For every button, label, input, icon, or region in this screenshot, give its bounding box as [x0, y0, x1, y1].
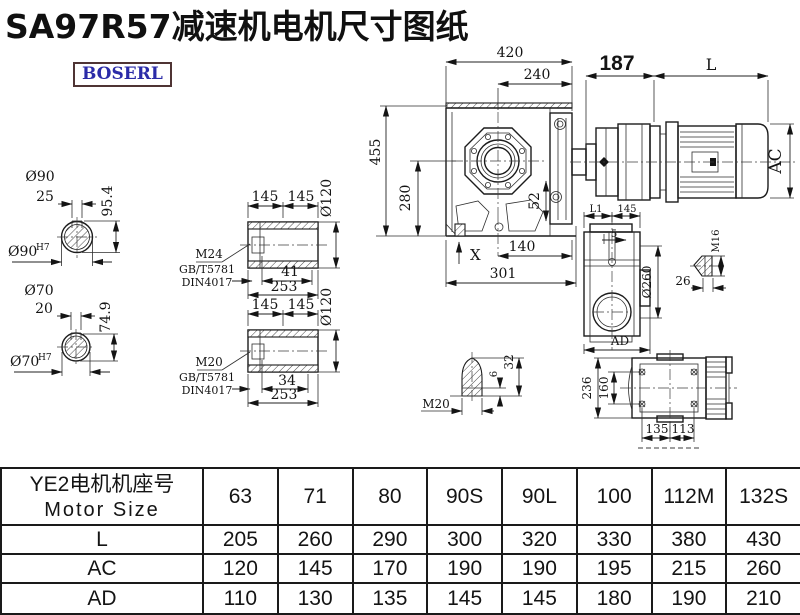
AD-71: 130 — [278, 583, 353, 614]
AC-90s: 190 — [427, 554, 502, 583]
m24-label: M24 — [195, 247, 223, 261]
table-row-L: L 205 260 290 300 320 330 380 430 — [1, 525, 800, 554]
m16-plug-detail: M16 26 — [675, 230, 726, 292]
drain-plug — [455, 224, 465, 236]
m20-thread-label: M20 — [195, 355, 223, 369]
hollow-shaft-detail-m24: 145 145 Ø120 M24 GB/T5781 DIN4017 41 253 — [179, 179, 340, 299]
L-100: 330 — [577, 525, 652, 554]
dim-41-label: 41 — [281, 264, 299, 280]
motor-size-header-en: Motor Size — [2, 498, 202, 522]
col-header-71: 71 — [278, 468, 353, 525]
dim-X-label: X — [470, 246, 481, 264]
row-label-AD: AD — [1, 583, 203, 614]
row-label-L: L — [1, 525, 203, 554]
gearbox-side-view: L1 145 5 Ø260 AD — [584, 204, 662, 354]
dim-52-label: 52 — [527, 192, 543, 210]
motor-assembly — [570, 122, 798, 202]
dim-5-label: 5 — [611, 229, 617, 240]
AD-100: 180 — [577, 583, 652, 614]
dim-L1-label: L1 — [589, 204, 602, 215]
AC-100: 195 — [577, 554, 652, 583]
m20-bolt-detail: M20 6 32 — [421, 352, 524, 415]
dim-187-label: 187 — [599, 52, 634, 75]
motor-end-cap — [736, 124, 768, 198]
dim-AC-label: AC — [766, 148, 786, 174]
col-header-90l: 90L — [502, 468, 577, 525]
AC-63: 120 — [203, 554, 278, 583]
hollow-shaft-detail-m20: 145 145 Ø120 M20 GB/T5781 DIN4017 34 253 — [179, 288, 340, 407]
dim-26-label: 26 — [675, 274, 690, 288]
dim-140-label: 140 — [509, 239, 536, 255]
dim-420-label: 420 — [497, 45, 524, 61]
flange-bolt-hole-bottom — [551, 192, 562, 203]
dim-113-label: 113 — [672, 422, 695, 436]
AC-80: 170 — [353, 554, 428, 583]
dia-90h7-label: Ø90 — [8, 244, 37, 260]
dim-236-label: 236 — [580, 377, 594, 400]
dim-25-label: 25 — [36, 189, 54, 205]
m20-bolt-label: M20 — [422, 397, 450, 411]
dim-95-4-label: 95.4 — [100, 185, 116, 216]
dim-145b-label: 145 — [288, 189, 315, 205]
motor-size-table: YE2电机机座号 Motor Size 63 71 80 90S 90L 100… — [0, 467, 800, 615]
col-header-63: 63 — [203, 468, 278, 525]
din-standard-a-label: DIN4017 — [182, 276, 233, 289]
AC-112m: 215 — [652, 554, 727, 583]
motor-size-header-cell: YE2电机机座号 Motor Size — [1, 468, 203, 525]
L-112m: 380 — [652, 525, 727, 554]
gb-standard-b-label: GB/T5781 — [179, 371, 235, 384]
dia-120a-label: Ø120 — [319, 179, 335, 217]
dia-90-label: Ø90 — [25, 169, 54, 185]
col-header-80: 80 — [353, 468, 428, 525]
m16-label: M16 — [711, 230, 722, 253]
L-132s: 430 — [726, 525, 800, 554]
col-header-132s: 132S — [726, 468, 800, 525]
dim-135-label: 135 — [646, 422, 669, 436]
AD-90l: 145 — [502, 583, 577, 614]
col-header-112m: 112M — [652, 468, 727, 525]
shaft-section-90: Ø90 25 95.4 Ø90 H7 — [8, 169, 120, 266]
col-header-100: 100 — [577, 468, 652, 525]
dim-280-label: 280 — [398, 185, 414, 212]
dim-6-label: 6 — [489, 371, 500, 377]
gb-standard-a-label: GB/T5781 — [179, 263, 235, 276]
dia-70h7-label: Ø70 — [10, 354, 39, 370]
dim-455-label: 455 — [368, 139, 384, 166]
dim-AD-label: AD — [610, 334, 629, 348]
dim-74-9-label: 74.9 — [98, 301, 114, 332]
table-header-row: YE2电机机座号 Motor Size 63 71 80 90S 90L 100… — [1, 468, 800, 525]
dim-301-label: 301 — [490, 266, 517, 282]
L-90s: 300 — [427, 525, 502, 554]
table-row-AD: AD 110 130 135 145 145 180 190 210 — [1, 583, 800, 614]
AD-63: 110 — [203, 583, 278, 614]
table-row-AC: AC 120 145 170 190 190 195 215 260 — [1, 554, 800, 583]
AD-132s: 210 — [726, 583, 800, 614]
dim-253b-label: 253 — [271, 387, 298, 403]
din-standard-b-label: DIN4017 — [182, 384, 233, 397]
flange-bolt-hole-top — [555, 119, 566, 130]
dim-20-label: 20 — [35, 301, 53, 317]
L-71: 260 — [278, 525, 353, 554]
AC-71: 145 — [278, 554, 353, 583]
dia-260-label: Ø260 — [640, 266, 654, 299]
dim-32-label: 32 — [502, 354, 516, 369]
main-view-dimensions: 420 240 187 L 455 280 52 140 301 X AC — [368, 45, 794, 287]
col-header-90s: 90S — [427, 468, 502, 525]
dim-145d-label: 145 — [288, 297, 315, 313]
bottom-hole — [495, 223, 503, 231]
mounting-surface-hatch — [446, 103, 572, 108]
dim-L-label: L — [706, 55, 717, 74]
dimension-drawing: 420 240 187 L 455 280 52 140 301 X AC Ø9… — [0, 0, 800, 466]
gearbox-bottom-view: 236 160 135 113 — [580, 350, 737, 448]
dim-145a-label: 145 — [252, 189, 279, 205]
AD-80: 135 — [353, 583, 428, 614]
dim-240-label: 240 — [524, 67, 551, 83]
row-label-AC: AC — [1, 554, 203, 583]
dia-120b-label: Ø120 — [319, 288, 335, 326]
dia-70h7-sup: H7 — [38, 353, 52, 363]
dim-145c-label: 145 — [252, 297, 279, 313]
AC-90l: 190 — [502, 554, 577, 583]
AC-132s: 260 — [726, 554, 800, 583]
AD-90s: 145 — [427, 583, 502, 614]
L-63: 205 — [203, 525, 278, 554]
dia-70-label: Ø70 — [24, 283, 53, 299]
dia-90h7-sup: H7 — [36, 243, 50, 253]
motor-size-header-cn: YE2电机机座号 — [2, 472, 202, 498]
dim-160-label: 160 — [597, 377, 611, 400]
main-front-view — [446, 103, 576, 256]
dim-253a-label: 253 — [271, 279, 298, 295]
dim-145e-label: 145 — [617, 204, 636, 215]
L-80: 290 — [353, 525, 428, 554]
AD-112m: 190 — [652, 583, 727, 614]
shaft-section-70: Ø70 20 74.9 Ø70 H7 — [10, 283, 118, 376]
L-90l: 320 — [502, 525, 577, 554]
